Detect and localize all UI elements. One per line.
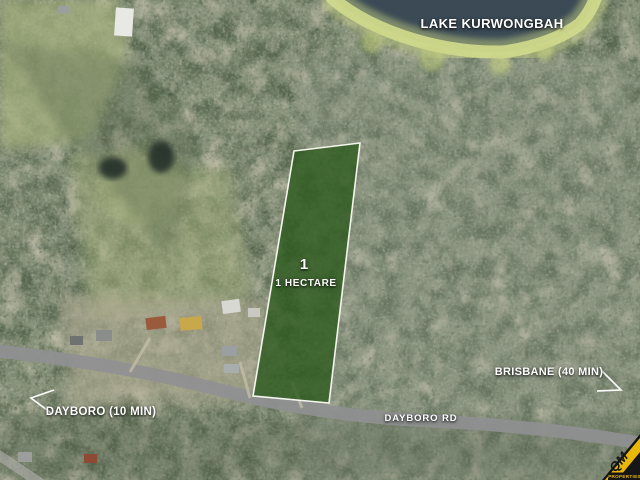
aerial-listing-image: LAKE KURWONGBAH 1 1 HECTARE BRISBANE (40… bbox=[0, 0, 640, 480]
shore-blob bbox=[489, 53, 511, 75]
house-roof bbox=[84, 454, 97, 463]
house-roof bbox=[70, 336, 83, 345]
shore-blob bbox=[419, 45, 445, 71]
logo-tagline-text: PROPERTIES bbox=[608, 474, 640, 479]
house-roof bbox=[145, 316, 166, 330]
shore-blob bbox=[361, 31, 383, 53]
house-roof bbox=[114, 7, 134, 36]
lake-name-label: LAKE KURWONGBAH bbox=[421, 17, 564, 30]
parcel-number-label: 1 bbox=[300, 257, 308, 272]
pond bbox=[99, 157, 127, 179]
brisbane-direction-label: BRISBANE (40 MIN) bbox=[495, 367, 603, 378]
road-name-label: DAYBORO RD bbox=[384, 414, 457, 424]
brand-logo: QM PROPERTIES bbox=[588, 432, 640, 480]
house-roof bbox=[96, 330, 112, 341]
house-roof bbox=[248, 308, 260, 317]
dayboro-direction-label: DAYBORO (10 MIN) bbox=[46, 407, 156, 419]
house-roof bbox=[221, 299, 241, 314]
house-roof bbox=[180, 316, 203, 331]
shore-blob bbox=[536, 43, 554, 61]
house-roof bbox=[18, 452, 32, 462]
parcel-area-label: 1 HECTARE bbox=[275, 279, 336, 289]
shed-roof bbox=[224, 364, 239, 373]
house-roof bbox=[58, 6, 69, 14]
shed-roof bbox=[222, 346, 237, 356]
pond bbox=[148, 141, 174, 173]
